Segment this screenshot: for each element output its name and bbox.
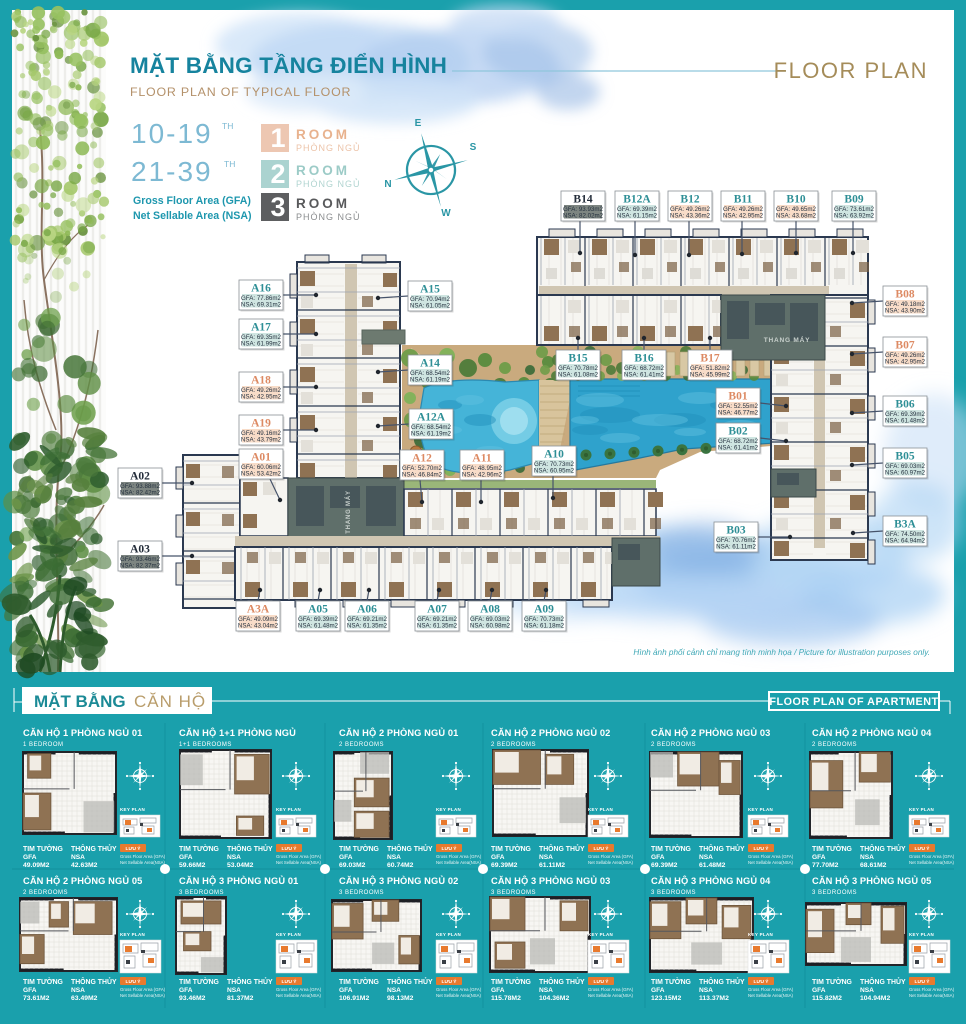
svg-text:NSA: 46.84m2: NSA: 46.84m2 (402, 472, 443, 479)
svg-text:A08: A08 (480, 604, 500, 616)
svg-text:CĂN HỘ 2 PHÒNG NGỦ 03: CĂN HỘ 2 PHÒNG NGỦ 03 (651, 727, 770, 738)
svg-text:ROOM: ROOM (296, 127, 350, 142)
svg-text:THÔNG THỦY: THÔNG THỦY (539, 977, 585, 986)
svg-text:3 BEDROOMS: 3 BEDROOMS (491, 890, 536, 896)
svg-text:NSA: 60.97m2: NSA: 60.97m2 (885, 470, 926, 477)
svg-text:3 BEDROOMS: 3 BEDROOMS (812, 890, 857, 896)
svg-text:GFA: GFA (23, 854, 37, 861)
svg-text:LƯU Ý: LƯU Ý (126, 845, 142, 852)
svg-text:69.03M2: 69.03M2 (339, 862, 366, 869)
svg-text:Gross Floor Area (GFA): Gross Floor Area (GFA) (909, 987, 955, 992)
svg-text:NSA: 53.42m2: NSA: 53.42m2 (241, 471, 282, 478)
svg-text:3 BEDROOMS: 3 BEDROOMS (339, 890, 384, 896)
svg-text:TIM TƯỜNG: TIM TƯỜNG (491, 844, 531, 853)
svg-text:TIM TƯỜNG: TIM TƯỜNG (339, 844, 379, 853)
svg-text:Net Sellable Area(NSA): Net Sellable Area(NSA) (588, 860, 633, 865)
svg-text:NSA: 42.95m2: NSA: 42.95m2 (723, 213, 764, 220)
svg-text:B17: B17 (700, 353, 719, 365)
svg-text:A07: A07 (427, 604, 447, 616)
svg-text:THÔNG THỦY: THÔNG THỦY (71, 977, 117, 986)
svg-text:Gross Floor Area (GFA): Gross Floor Area (GFA) (120, 854, 166, 859)
svg-text:B01: B01 (728, 391, 747, 403)
svg-text:TIM TƯỜNG: TIM TƯỜNG (179, 844, 219, 853)
svg-text:2 BEDROOMS: 2 BEDROOMS (23, 890, 68, 896)
svg-text:Gross Floor Area (GFA): Gross Floor Area (GFA) (748, 854, 794, 859)
svg-text:A3A: A3A (247, 604, 270, 616)
svg-text:B09: B09 (844, 194, 863, 206)
svg-text:NSA: 43.90m2: NSA: 43.90m2 (885, 308, 926, 315)
svg-text:NSA: 61.48m2: NSA: 61.48m2 (298, 623, 339, 630)
svg-text:B15: B15 (568, 353, 587, 365)
svg-text:NSA: 61.41m2: NSA: 61.41m2 (718, 445, 759, 452)
svg-text:NSA: NSA (860, 987, 874, 994)
svg-text:63.49M2: 63.49M2 (71, 995, 98, 1002)
svg-text:GFA: GFA (491, 854, 505, 861)
svg-text:LƯU Ý: LƯU Ý (915, 845, 931, 852)
svg-text:81.37M2: 81.37M2 (227, 995, 254, 1002)
svg-text:TH: TH (224, 159, 235, 169)
svg-text:Net Sellable Area(NSA): Net Sellable Area(NSA) (436, 993, 481, 998)
svg-text:LƯU Ý: LƯU Ý (282, 978, 298, 985)
svg-text:B10: B10 (786, 194, 805, 206)
svg-text:NSA: 82.37m2: NSA: 82.37m2 (120, 563, 161, 570)
svg-text:1 BEDROOM: 1 BEDROOM (23, 742, 64, 748)
svg-text:69.39M2: 69.39M2 (651, 862, 678, 869)
svg-text:ROOM: ROOM (296, 196, 350, 211)
svg-text:NSA: 61.18m2: NSA: 61.18m2 (524, 623, 565, 630)
svg-text:2 BEDROOMS: 2 BEDROOMS (339, 742, 384, 748)
svg-text:NSA: 64.94m2: NSA: 64.94m2 (885, 538, 926, 545)
svg-text:Net Sellable Area(NSA): Net Sellable Area(NSA) (748, 993, 793, 998)
svg-text:113.37M2: 113.37M2 (699, 995, 729, 1002)
svg-text:Gross Floor Area (GFA): Gross Floor Area (GFA) (276, 987, 322, 992)
svg-text:98.13M2: 98.13M2 (387, 995, 414, 1002)
svg-text:B12: B12 (680, 194, 699, 206)
svg-text:B06: B06 (895, 399, 914, 411)
svg-text:NSA: 63.92m2: NSA: 63.92m2 (834, 213, 875, 220)
svg-text:GFA: GFA (812, 987, 826, 994)
svg-text:CĂN HỘ 2 PHÒNG NGỦ 04: CĂN HỘ 2 PHÒNG NGỦ 04 (812, 727, 932, 738)
svg-text:NSA: 60.98m2: NSA: 60.98m2 (470, 623, 511, 630)
svg-text:LƯU Ý: LƯU Ý (282, 845, 298, 852)
svg-text:PHÒNG NGỦ: PHÒNG NGỦ (296, 142, 361, 153)
svg-text:2: 2 (270, 159, 285, 189)
svg-text:THANG MÁY: THANG MÁY (345, 490, 352, 534)
svg-text:TIM TƯỜNG: TIM TƯỜNG (651, 844, 691, 853)
svg-text:GFA: GFA (812, 854, 826, 861)
svg-text:Net Sellable Area(NSA): Net Sellable Area(NSA) (120, 860, 165, 865)
svg-text:A10: A10 (544, 449, 564, 461)
svg-text:Net Sellable Area(NSA): Net Sellable Area(NSA) (909, 860, 954, 865)
svg-text:104.94M2: 104.94M2 (860, 995, 890, 1002)
svg-text:Net Sellable Area(NSA): Net Sellable Area(NSA) (276, 993, 321, 998)
svg-text:B03: B03 (726, 525, 745, 537)
svg-text:KEY PLAN: KEY PLAN (909, 807, 934, 812)
svg-text:KEY PLAN: KEY PLAN (748, 807, 773, 812)
svg-text:CĂN HỘ 2 PHÒNG NGỦ 02: CĂN HỘ 2 PHÒNG NGỦ 02 (491, 727, 610, 738)
svg-text:93.46M2: 93.46M2 (179, 995, 206, 1002)
svg-text:S: S (470, 142, 477, 153)
svg-text:GFA: GFA (339, 987, 353, 994)
svg-text:NSA: NSA (539, 854, 553, 861)
svg-text:MẶT BẰNG TẦNG ĐIỂN HÌNH: MẶT BẰNG TẦNG ĐIỂN HÌNH (130, 53, 447, 78)
svg-text:21-39: 21-39 (131, 156, 213, 187)
svg-text:NSA: 43.04m2: NSA: 43.04m2 (238, 623, 279, 630)
svg-text:NSA: NSA (71, 854, 85, 861)
svg-text:TIM TƯỜNG: TIM TƯỜNG (812, 844, 852, 853)
svg-text:KEY PLAN: KEY PLAN (436, 932, 461, 937)
svg-text:61.48M2: 61.48M2 (699, 862, 726, 869)
svg-text:GFA: GFA (339, 854, 353, 861)
svg-text:THÔNG THỦY: THÔNG THỦY (699, 977, 745, 986)
svg-text:NSA: 43.79m2: NSA: 43.79m2 (241, 437, 282, 444)
svg-text:TIM TƯỜNG: TIM TƯỜNG (23, 977, 63, 986)
svg-text:106.91M2: 106.91M2 (339, 995, 369, 1002)
svg-text:NSA: 46.77m2: NSA: 46.77m2 (718, 410, 759, 417)
svg-text:60.74M2: 60.74M2 (387, 862, 414, 869)
svg-text:123.15M2: 123.15M2 (651, 995, 681, 1002)
svg-text:77.70M2: 77.70M2 (812, 862, 839, 869)
svg-text:2 BEDROOMS: 2 BEDROOMS (812, 742, 857, 748)
svg-text:Gross Floor Area (GFA): Gross Floor Area (GFA) (133, 195, 251, 207)
svg-text:KEY PLAN: KEY PLAN (588, 807, 613, 812)
svg-text:NSA: 61.19m2: NSA: 61.19m2 (411, 431, 452, 438)
svg-text:Gross Floor Area (GFA): Gross Floor Area (GFA) (748, 987, 794, 992)
svg-text:Net Sellable Area(NSA): Net Sellable Area(NSA) (276, 860, 321, 865)
svg-text:A12A: A12A (417, 412, 446, 424)
svg-text:THÔNG THỦY: THÔNG THỦY (71, 844, 117, 853)
svg-text:115.82M2: 115.82M2 (812, 995, 842, 1002)
svg-text:A05: A05 (308, 604, 328, 616)
svg-text:Hình ảnh phối cảnh chỉ mang tí: Hình ảnh phối cảnh chỉ mang tính minh họ… (633, 648, 930, 657)
svg-text:NSA: NSA (860, 854, 874, 861)
svg-text:NSA: 61.05m2: NSA: 61.05m2 (410, 303, 451, 310)
svg-text:LƯU Ý: LƯU Ý (594, 845, 610, 852)
svg-text:42.63M2: 42.63M2 (71, 862, 98, 869)
svg-text:A11: A11 (472, 453, 491, 465)
svg-text:KEY PLAN: KEY PLAN (276, 807, 301, 812)
svg-text:NSA: NSA (71, 987, 85, 994)
svg-text:LƯU Ý: LƯU Ý (754, 845, 770, 852)
svg-text:NSA: 43.68m2: NSA: 43.68m2 (776, 213, 817, 220)
svg-text:THÔNG THỦY: THÔNG THỦY (860, 844, 906, 853)
svg-text:B08: B08 (895, 289, 914, 301)
svg-text:GFA: GFA (651, 987, 665, 994)
svg-text:A03: A03 (130, 544, 150, 556)
svg-text:A02: A02 (130, 471, 150, 483)
svg-text:NSA: 42.95m2: NSA: 42.95m2 (885, 359, 926, 366)
svg-text:NSA: 69.31m2: NSA: 69.31m2 (241, 302, 282, 309)
svg-text:THÔNG THỦY: THÔNG THỦY (227, 977, 273, 986)
svg-text:FLOOR PLAN OF APARTMENT: FLOOR PLAN OF APARTMENT (769, 696, 938, 708)
svg-text:THÔNG THỦY: THÔNG THỦY (699, 844, 745, 853)
svg-text:TIM TƯỜNG: TIM TƯỜNG (339, 977, 379, 986)
svg-text:10-19: 10-19 (131, 118, 213, 149)
svg-text:Gross Floor Area (GFA): Gross Floor Area (GFA) (436, 987, 482, 992)
svg-text:NSA: NSA (539, 987, 553, 994)
svg-text:TIM TƯỜNG: TIM TƯỜNG (651, 977, 691, 986)
svg-text:GFA: GFA (651, 854, 665, 861)
svg-text:PHÒNG NGỦ: PHÒNG NGỦ (296, 211, 361, 222)
svg-text:THÔNG THỦY: THÔNG THỦY (227, 844, 273, 853)
svg-text:Net Sellable Area (NSA): Net Sellable Area (NSA) (133, 210, 252, 222)
svg-text:E: E (415, 118, 422, 129)
svg-text:A19: A19 (251, 418, 271, 430)
svg-text:NSA: 61.35m2: NSA: 61.35m2 (417, 623, 458, 630)
svg-text:TIM TƯỜNG: TIM TƯỜNG (179, 977, 219, 986)
svg-text:68.61M2: 68.61M2 (860, 862, 887, 869)
svg-text:B05: B05 (895, 451, 914, 463)
svg-text:NSA: 61.15m2: NSA: 61.15m2 (617, 213, 658, 220)
svg-text:W: W (441, 208, 451, 219)
svg-text:CĂN HỘ 3 PHÒNG NGỦ 04: CĂN HỘ 3 PHÒNG NGỦ 04 (651, 875, 771, 886)
svg-text:59.66M2: 59.66M2 (179, 862, 206, 869)
svg-text:NSA: 82.02m2: NSA: 82.02m2 (563, 213, 604, 220)
svg-text:THÔNG THỦY: THÔNG THỦY (387, 844, 433, 853)
svg-text:NSA: 42.96m2: NSA: 42.96m2 (462, 472, 503, 479)
svg-text:CĂN HỘ 2 PHÒNG NGỦ 01: CĂN HỘ 2 PHÒNG NGỦ 01 (339, 727, 458, 738)
svg-text:Gross Floor Area (GFA): Gross Floor Area (GFA) (588, 854, 634, 859)
svg-text:A17: A17 (251, 322, 271, 334)
svg-text:CĂN HỘ 3 PHÒNG NGỦ 02: CĂN HỘ 3 PHÒNG NGỦ 02 (339, 875, 458, 886)
svg-text:NSA: 61.11m2: NSA: 61.11m2 (716, 544, 756, 551)
svg-text:Net Sellable Area(NSA): Net Sellable Area(NSA) (436, 860, 481, 865)
svg-text:CĂN HỘ 2 PHÒNG NGỦ 05: CĂN HỘ 2 PHÒNG NGỦ 05 (23, 875, 142, 886)
svg-text:CĂN HỘ 3 PHÒNG NGỦ 01: CĂN HỘ 3 PHÒNG NGỦ 01 (179, 875, 298, 886)
svg-text:THÔNG THỦY: THÔNG THỦY (860, 977, 906, 986)
svg-text:NSA: 61.19m2: NSA: 61.19m2 (410, 377, 451, 384)
svg-text:THÔNG THỦY: THÔNG THỦY (539, 844, 585, 853)
svg-text:B11: B11 (734, 194, 753, 206)
svg-text:NSA: 43.36m2: NSA: 43.36m2 (670, 213, 711, 220)
svg-text:Gross Floor Area (GFA): Gross Floor Area (GFA) (120, 987, 166, 992)
svg-text:NSA: NSA (699, 854, 713, 861)
svg-text:FLOOR PLAN: FLOOR PLAN (774, 58, 928, 83)
svg-text:TH: TH (222, 121, 233, 131)
svg-text:KEY PLAN: KEY PLAN (120, 807, 145, 812)
svg-text:61.11M2: 61.11M2 (539, 862, 565, 869)
svg-text:PHÒNG NGỦ: PHÒNG NGỦ (296, 178, 361, 189)
svg-text:NSA: 61.08m2: NSA: 61.08m2 (558, 372, 599, 379)
svg-text:Net Sellable Area(NSA): Net Sellable Area(NSA) (120, 993, 165, 998)
svg-text:ROOM: ROOM (296, 163, 350, 178)
svg-text:B3A: B3A (894, 519, 916, 531)
svg-text:A12: A12 (412, 453, 432, 465)
svg-text:KEY PLAN: KEY PLAN (909, 932, 934, 937)
svg-text:1+1 BEDROOMS: 1+1 BEDROOMS (179, 742, 232, 748)
svg-text:CĂN HỘ: CĂN HỘ (134, 692, 206, 711)
svg-text:115.78M2: 115.78M2 (491, 995, 521, 1002)
svg-text:KEY PLAN: KEY PLAN (748, 932, 773, 937)
svg-text:73.61M2: 73.61M2 (23, 995, 50, 1002)
svg-text:B14: B14 (573, 194, 592, 206)
svg-text:GFA: GFA (491, 987, 505, 994)
svg-text:CĂN HỘ 1+1 PHÒNG NGỦ: CĂN HỘ 1+1 PHÒNG NGỦ (179, 727, 296, 738)
svg-text:Gross Floor Area (GFA): Gross Floor Area (GFA) (588, 987, 634, 992)
svg-text:Net Sellable Area(NSA): Net Sellable Area(NSA) (748, 860, 793, 865)
svg-text:NSA: 61.99m2: NSA: 61.99m2 (241, 341, 282, 348)
svg-text:Net Sellable Area(NSA): Net Sellable Area(NSA) (588, 993, 633, 998)
svg-text:A09: A09 (534, 604, 554, 616)
svg-text:THANG MÁY: THANG MÁY (764, 335, 811, 344)
svg-text:LƯU Ý: LƯU Ý (594, 978, 610, 985)
svg-text:TIM TƯỜNG: TIM TƯỜNG (812, 977, 852, 986)
svg-text:KEY PLAN: KEY PLAN (588, 932, 613, 937)
svg-text:2 BEDROOMS: 2 BEDROOMS (491, 742, 536, 748)
svg-text:Gross Floor Area (GFA): Gross Floor Area (GFA) (276, 854, 322, 859)
svg-text:TIM TƯỜNG: TIM TƯỜNG (23, 844, 63, 853)
svg-text:B02: B02 (728, 426, 747, 438)
svg-text:KEY PLAN: KEY PLAN (120, 932, 145, 937)
svg-text:KEY PLAN: KEY PLAN (276, 932, 301, 937)
svg-text:GFA: GFA (179, 854, 193, 861)
svg-text:3 BEDROOMS: 3 BEDROOMS (179, 890, 224, 896)
svg-text:NSA: 61.48m2: NSA: 61.48m2 (885, 418, 926, 425)
svg-text:A18: A18 (251, 375, 271, 387)
svg-text:A14: A14 (420, 358, 440, 370)
svg-text:3 BEDROOMS: 3 BEDROOMS (651, 890, 696, 896)
svg-text:LƯU Ý: LƯU Ý (442, 978, 458, 985)
svg-text:49.09M2: 49.09M2 (23, 862, 50, 869)
svg-text:NSA: 45.99m2: NSA: 45.99m2 (690, 372, 731, 379)
svg-text:B07: B07 (895, 340, 914, 352)
svg-text:B12A: B12A (623, 194, 651, 206)
svg-text:NSA: NSA (227, 987, 241, 994)
svg-text:NSA: 61.35m2: NSA: 61.35m2 (347, 623, 388, 630)
svg-text:Gross Floor Area (GFA): Gross Floor Area (GFA) (436, 854, 482, 859)
svg-text:MẶT BẰNG: MẶT BẰNG (34, 692, 126, 711)
svg-text:A15: A15 (420, 284, 440, 296)
svg-text:3: 3 (270, 192, 285, 222)
svg-text:69.39M2: 69.39M2 (491, 862, 518, 869)
svg-text:FLOOR PLAN OF TYPICAL FLOOR: FLOOR PLAN OF TYPICAL FLOOR (130, 85, 351, 99)
svg-text:Net Sellable Area(NSA): Net Sellable Area(NSA) (909, 993, 954, 998)
svg-text:N: N (384, 179, 391, 190)
svg-text:104.36M2: 104.36M2 (539, 995, 569, 1002)
svg-text:NSA: NSA (227, 854, 241, 861)
svg-text:B16: B16 (634, 353, 653, 365)
svg-text:NSA: 61.41m2: NSA: 61.41m2 (624, 372, 665, 379)
svg-text:53.04M2: 53.04M2 (227, 862, 254, 869)
svg-text:Gross Floor Area (GFA): Gross Floor Area (GFA) (909, 854, 955, 859)
svg-text:2 BEDROOMS: 2 BEDROOMS (651, 742, 696, 748)
svg-text:LƯU Ý: LƯU Ý (126, 978, 142, 985)
svg-text:GFA: GFA (179, 987, 193, 994)
svg-text:NSA: NSA (699, 987, 713, 994)
svg-text:A01: A01 (251, 452, 271, 464)
svg-text:TIM TƯỜNG: TIM TƯỜNG (491, 977, 531, 986)
svg-text:1: 1 (270, 123, 285, 153)
svg-text:NSA: 82.42m2: NSA: 82.42m2 (120, 490, 161, 497)
svg-text:KEY PLAN: KEY PLAN (436, 807, 461, 812)
svg-text:CĂN HỘ 3 PHÒNG NGỦ 05: CĂN HỘ 3 PHÒNG NGỦ 05 (812, 875, 931, 886)
svg-text:NSA: NSA (387, 987, 401, 994)
svg-text:NSA: 42.95m2: NSA: 42.95m2 (241, 394, 282, 401)
svg-text:NSA: 60.95m2: NSA: 60.95m2 (534, 468, 575, 475)
svg-text:LƯU Ý: LƯU Ý (754, 978, 770, 985)
svg-text:CĂN HỘ 3 PHÒNG NGỦ 03: CĂN HỘ 3 PHÒNG NGỦ 03 (491, 875, 610, 886)
svg-text:A06: A06 (357, 604, 377, 616)
svg-text:LƯU Ý: LƯU Ý (442, 845, 458, 852)
svg-text:A16: A16 (251, 283, 271, 295)
svg-text:NSA: NSA (387, 854, 401, 861)
svg-text:THÔNG THỦY: THÔNG THỦY (387, 977, 433, 986)
svg-text:LƯU Ý: LƯU Ý (915, 978, 931, 985)
svg-text:GFA: GFA (23, 987, 37, 994)
svg-text:CĂN HỘ 1 PHÒNG NGỦ 01: CĂN HỘ 1 PHÒNG NGỦ 01 (23, 727, 142, 738)
